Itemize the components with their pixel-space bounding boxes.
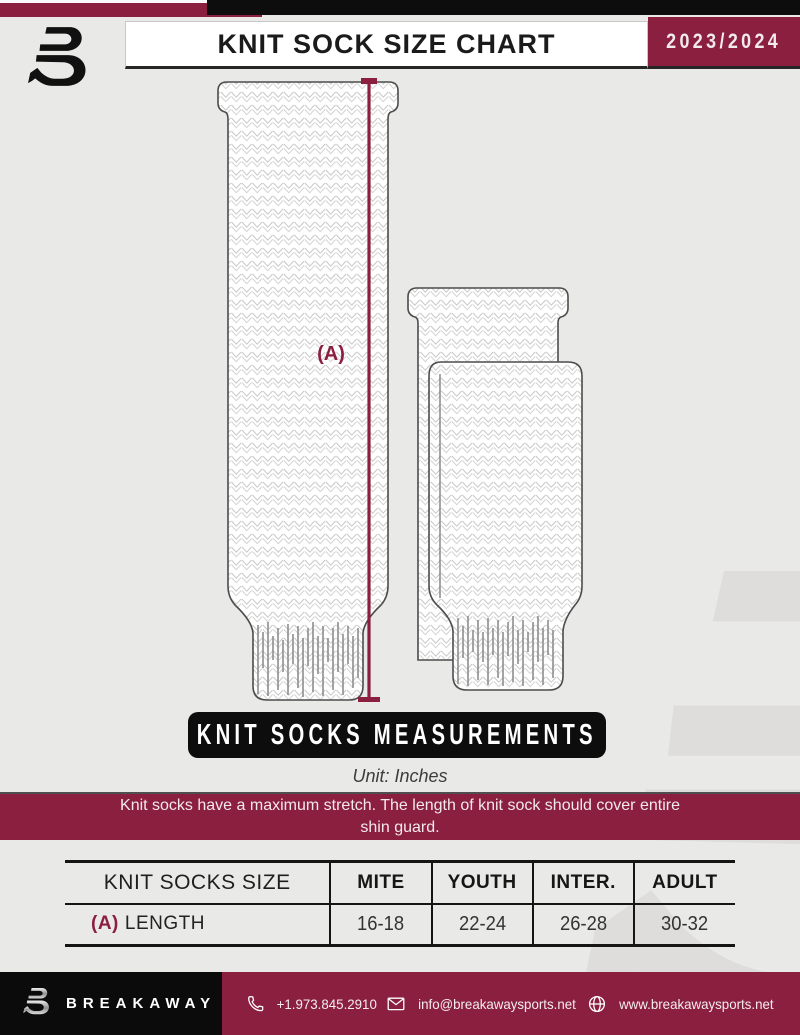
envelope-icon — [386, 994, 406, 1014]
value-youth: 22-24 — [432, 904, 533, 946]
contact-website: www.breakawaysports.net — [587, 994, 778, 1014]
value-inter: 26-28 — [533, 904, 634, 946]
phone-icon — [246, 994, 266, 1014]
footer-brand-block: BREAKAWAY — [0, 972, 222, 1035]
column-mite: MITE — [330, 862, 431, 904]
globe-icon — [587, 994, 607, 1014]
contact-email: info@breakawaysports.net — [386, 994, 580, 1014]
sock-diagram: (A) — [0, 0, 800, 810]
contact-phone: +1.973.845.2910 — [246, 994, 380, 1014]
size-table-header-row: KNIT SOCKS SIZE MITE YOUTH INTER. ADULT — [65, 862, 735, 904]
stretch-note-text: Knit socks have a maximum stretch. The l… — [110, 795, 690, 839]
size-chart-page: KNIT SOCK SIZE CHART 2023/2024 — [0, 0, 800, 1035]
table-row-length: (A)LENGTH 16-18 22-24 26-28 30-32 — [65, 904, 735, 946]
breakaway-logo-icon — [22, 984, 54, 1024]
email-address: info@breakawaysports.net — [419, 996, 577, 1012]
measurement-label: (A) — [317, 343, 345, 365]
size-table-title: KNIT SOCKS SIZE — [65, 862, 330, 904]
value-mite: 16-18 — [330, 904, 431, 946]
website-url: www.breakawaysports.net — [619, 996, 774, 1012]
column-inter: INTER. — [533, 862, 634, 904]
unit-label: Unit: Inches — [0, 766, 800, 787]
brand-name: BREAKAWAY — [66, 995, 216, 1012]
footer-contact-block: +1.973.845.2910 info@breakawaysports.net… — [222, 972, 800, 1035]
row-label: (A)LENGTH — [65, 904, 330, 946]
column-adult: ADULT — [634, 862, 735, 904]
size-table: KNIT SOCKS SIZE MITE YOUTH INTER. ADULT … — [65, 860, 735, 947]
row-label-prefix: (A) — [91, 913, 119, 934]
measurements-banner-label: KNIT SOCKS MEASUREMENTS — [197, 719, 597, 752]
footer: BREAKAWAY +1.973.845.2910 info@breakaway… — [0, 972, 800, 1035]
stretch-note-banner: Knit socks have a maximum stretch. The l… — [0, 792, 800, 840]
sock-large — [218, 82, 398, 700]
column-youth: YOUTH — [432, 862, 533, 904]
value-adult: 30-32 — [634, 904, 735, 946]
phone-number: +1.973.845.2910 — [277, 996, 377, 1012]
measurements-banner: KNIT SOCKS MEASUREMENTS — [188, 712, 606, 758]
row-label-text: LENGTH — [125, 913, 205, 934]
